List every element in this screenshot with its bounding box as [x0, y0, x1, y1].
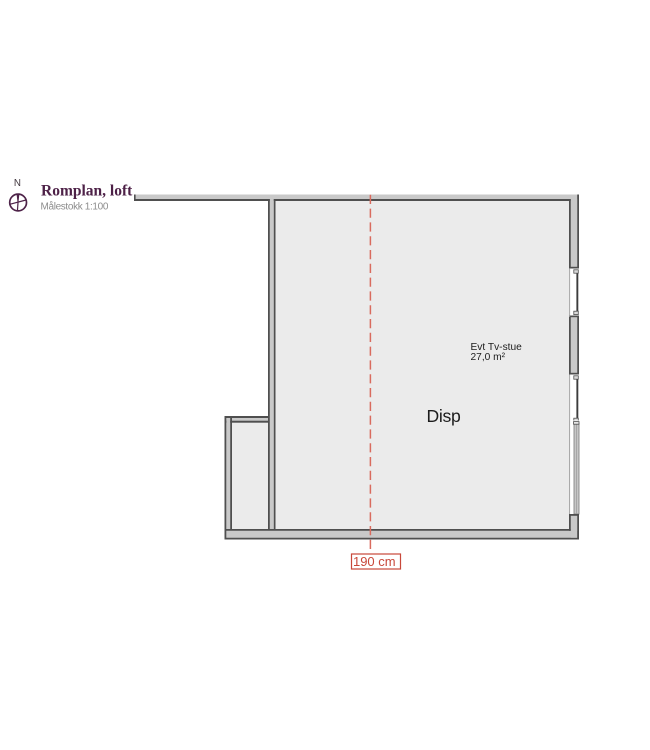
- svg-text:Disp: Disp: [427, 406, 462, 426]
- svg-text:Målestokk 1:100: Målestokk 1:100: [41, 201, 109, 213]
- svg-text:27,0 m²: 27,0 m²: [471, 352, 506, 363]
- svg-text:N: N: [14, 178, 21, 189]
- svg-text:Romplan, loft: Romplan, loft: [41, 183, 133, 200]
- svg-text:190 cm: 190 cm: [353, 554, 396, 569]
